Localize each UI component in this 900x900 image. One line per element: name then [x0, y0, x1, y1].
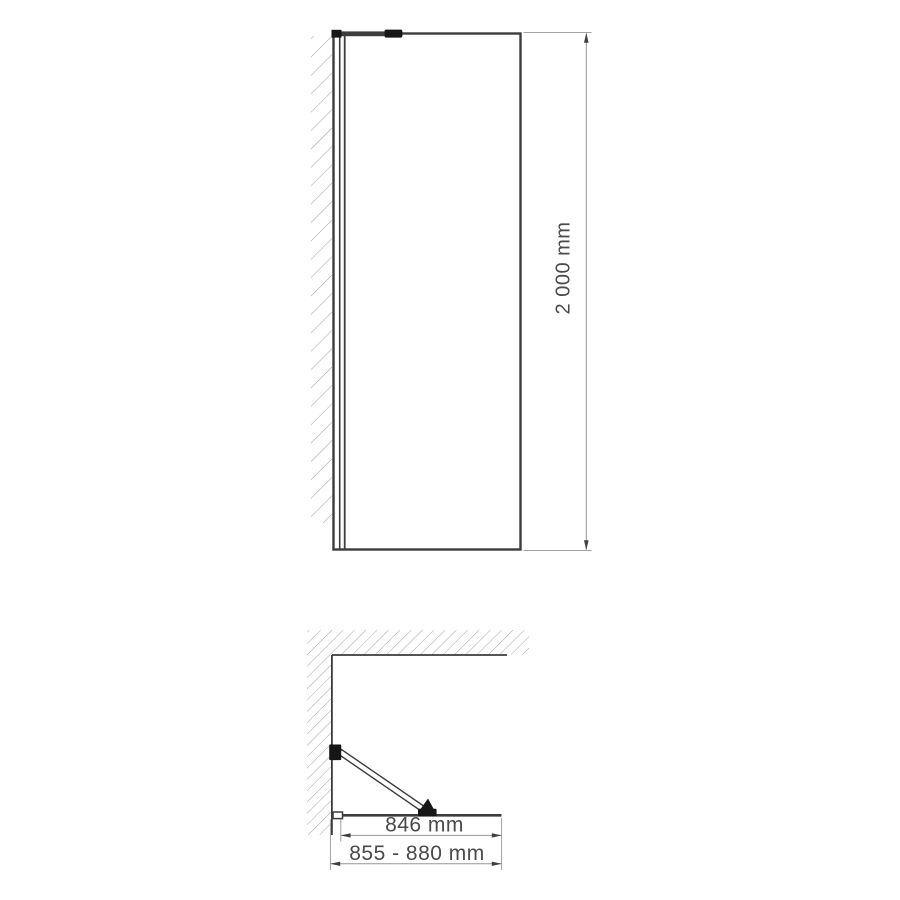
plan-support-bar [338, 750, 427, 814]
plan-support-bar-wall-mount [329, 745, 341, 761]
drawing-canvas: 2 000 mm [0, 0, 900, 900]
glass-width-arrow-right [492, 833, 502, 837]
plan-wall-hatch-left [307, 655, 332, 835]
front-wall-hatch [311, 36, 332, 523]
front-view: 2 000 mm [311, 30, 592, 551]
front-wall-anchor [332, 30, 342, 38]
front-support-bar-fitting [385, 30, 403, 38]
height-dimension: 2 000 mm [524, 32, 592, 550]
plan-wall-profile [333, 812, 343, 819]
height-dimension-arrow-top [584, 33, 589, 43]
total-width-arrow-right [492, 862, 502, 866]
height-dimension-label: 2 000 mm [553, 222, 575, 315]
total-width-arrow-left [330, 862, 340, 866]
height-dimension-arrow-bottom [584, 540, 589, 550]
glass-width-dimension-label: 846 mm [385, 814, 464, 837]
front-glass-panel [334, 34, 521, 550]
plan-view: 846 mm 855 - 880 mm [307, 630, 529, 870]
plan-wall-hatch-top [307, 630, 529, 655]
technical-drawing: 2 000 mm [0, 0, 900, 900]
glass-width-dimension: 846 mm [341, 814, 502, 842]
glass-width-arrow-left [341, 833, 351, 837]
total-width-dimension-label: 855 - 880 mm [349, 842, 485, 865]
